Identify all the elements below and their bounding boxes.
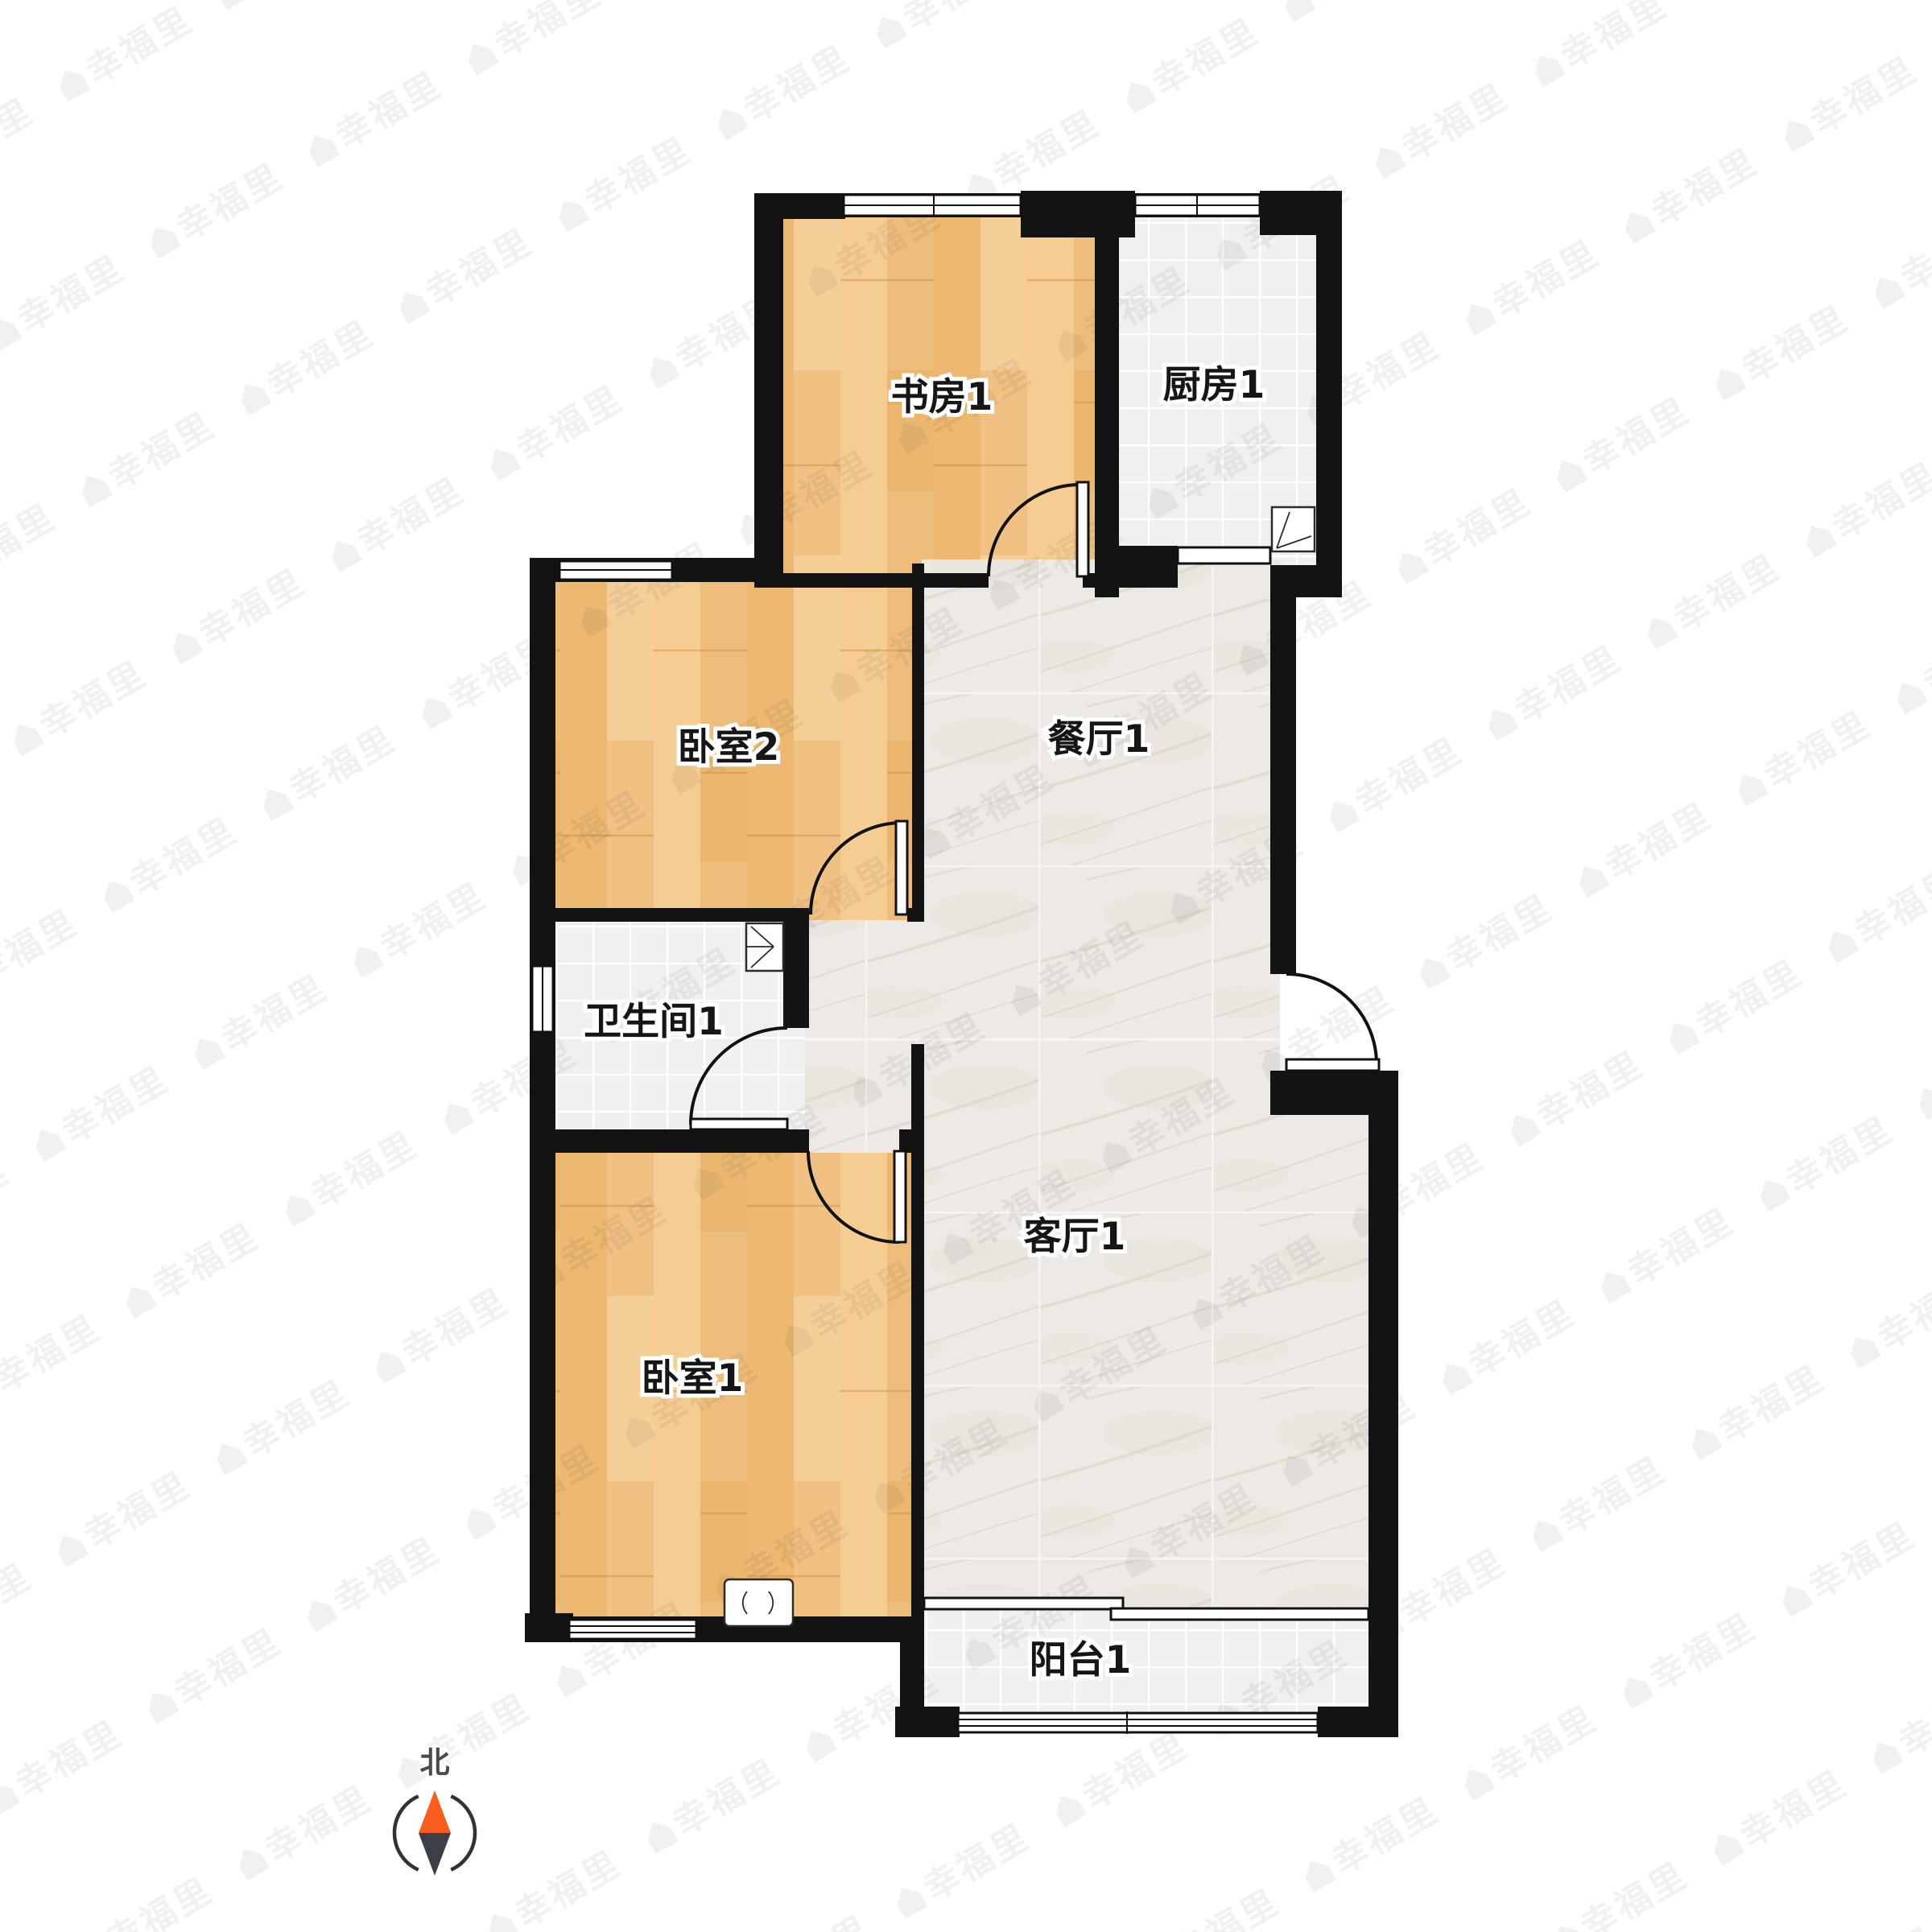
- living-label: 客厅1: [1024, 1215, 1126, 1259]
- dining-label: 餐厅1: [1048, 717, 1150, 762]
- wall-bathroom-bottom: [530, 1129, 809, 1153]
- kitchen-sink: [1272, 507, 1315, 551]
- kitchen-passage-threshold: [1178, 547, 1270, 563]
- bedroom1-window: [569, 1620, 696, 1639]
- bedroom2-label: 卧室2: [678, 725, 780, 770]
- balcony-label: 阳台1: [1030, 1638, 1132, 1682]
- wall-balcony-right: [1368, 1107, 1398, 1737]
- kitchen-label: 厨房1: [1163, 363, 1265, 407]
- wall-kitchen-right: [1316, 193, 1342, 596]
- wall-study-bottom-right: [1083, 573, 1178, 588]
- compass-north-label: 北: [420, 1745, 450, 1780]
- wall-balcony-corner-right: [1318, 1707, 1398, 1737]
- wall-bedroom2-bottom: [530, 908, 809, 922]
- wall-corner-bottom-left: [525, 1613, 573, 1642]
- bedroom1-label: 卧室1: [642, 1356, 744, 1401]
- bathroom-window: [532, 966, 553, 1032]
- study-window: [844, 193, 1021, 217]
- wall-study-bottom-left: [783, 573, 989, 588]
- wall-study-kitchen: [1095, 193, 1119, 597]
- wall-bedroom1-right: [911, 1044, 924, 1642]
- bedroom2-window: [559, 561, 672, 580]
- air-conditioner: [724, 1579, 793, 1626]
- bathroom-sink: [746, 923, 783, 971]
- wall-entry-block: [1270, 1071, 1398, 1115]
- balcony-window: [958, 1711, 1318, 1734]
- wall-balcony-corner-left: [895, 1707, 960, 1737]
- kitchen-window: [1135, 193, 1260, 217]
- wall-bedroom2-door-jamb: [907, 908, 924, 922]
- study-label: 书房1: [891, 375, 993, 419]
- wall-bathroom-right: [783, 920, 809, 1028]
- floor-plan: 幸福里: [0, 0, 1932, 1932]
- wall-bedroom2-right: [912, 563, 924, 922]
- wall-dining-right: [1270, 588, 1296, 974]
- wall-left-outer: [530, 558, 555, 1642]
- bathroom-label: 卫生间1: [584, 1000, 724, 1044]
- wall-kitchen-bottom: [1113, 546, 1178, 573]
- watermark-layer: [0, 0, 1932, 1932]
- wall-study-left: [754, 193, 783, 588]
